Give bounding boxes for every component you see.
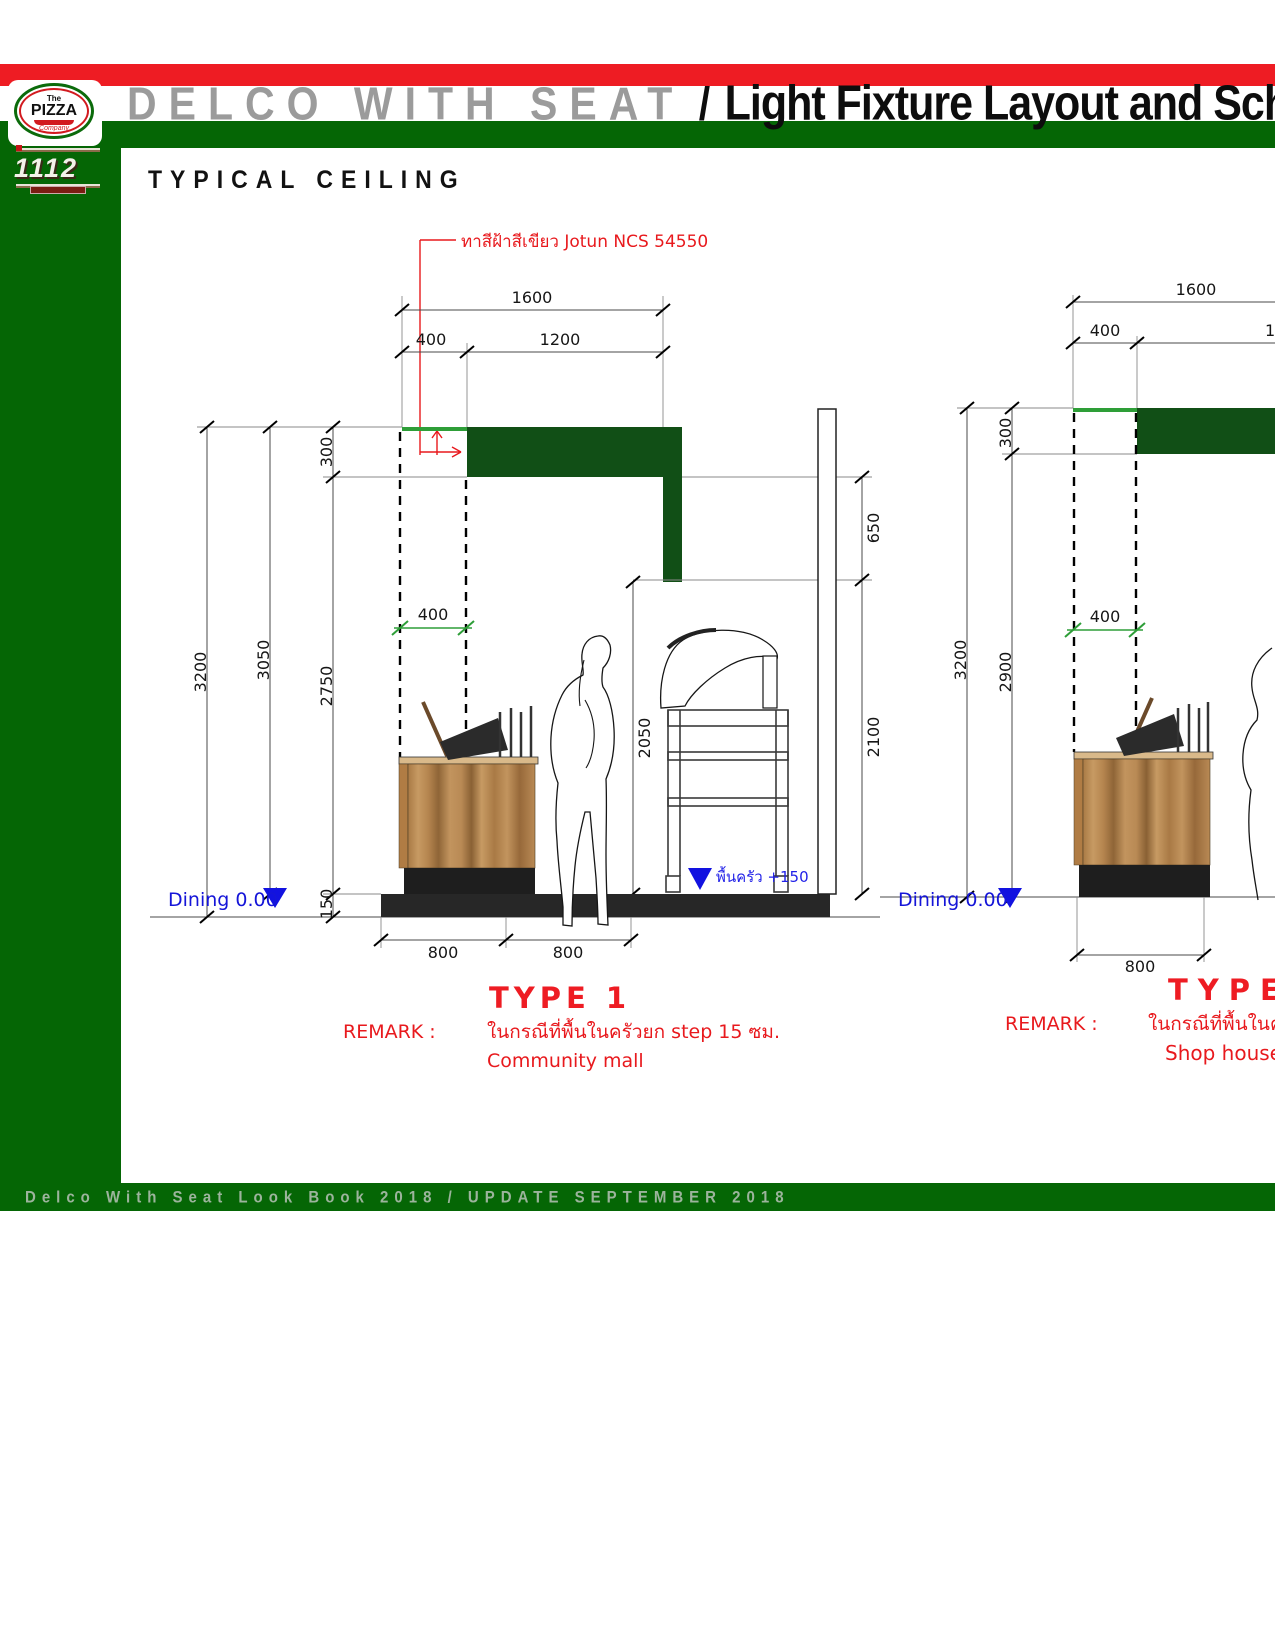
type2-counter-tools <box>1116 698 1208 756</box>
elevation-drawings: ทาสีฝ้าสีเขียว Jotun NCS 54550 1600 400 … <box>0 0 1275 1651</box>
type1-drawing: ทาสีฝ้าสีเขียว Jotun NCS 54550 1600 400 … <box>150 232 883 1072</box>
type1-dim-150: 150 <box>317 889 336 920</box>
type1-dim-800-b: 800 <box>553 943 584 962</box>
type2-drawing: 1600 400 1200 3200 300 2900 <box>880 280 1275 1065</box>
type1-oven <box>661 630 788 892</box>
type1-top-extensions <box>402 296 663 427</box>
type1-dim-1600: 1600 <box>512 288 553 307</box>
type2-person-silhouette-partial <box>1243 648 1272 900</box>
type2-dining-level-label: Dining 0.00 <box>898 889 1008 911</box>
type1-dim-300: 300 <box>317 437 336 468</box>
type2-remark-line2: Shop house <box>1165 1041 1275 1065</box>
type1-remark-line1: ในกรณีที่พื้นในครัวยก step 15 ซม. <box>487 1018 780 1043</box>
type1-dim-2100: 2100 <box>864 717 883 758</box>
lookbook-page: DELCO WITH SEAT / Light Fixture Layout a… <box>0 0 1275 1651</box>
type2-remark-line1: ในกรณีที่พื้นในครัว <box>1148 1010 1275 1035</box>
type1-dim-3050: 3050 <box>254 640 273 681</box>
type1-dim-650: 650 <box>864 513 883 544</box>
type1-dining-level-label: Dining 0.00 <box>168 889 278 911</box>
type2-dim-1600: 1600 <box>1176 280 1217 299</box>
type2-ceiling-bulkhead <box>1073 408 1275 454</box>
type1-dim-400-mid: 400 <box>418 605 449 624</box>
type2-label: TYPE 2 <box>1168 973 1275 1007</box>
type1-dim-2750: 2750 <box>317 666 336 707</box>
type2-dim-800: 800 <box>1125 957 1156 976</box>
type2-dim-400-mid: 400 <box>1090 607 1121 626</box>
type1-remark-line2: Community mall <box>487 1050 644 1072</box>
type2-counter <box>1074 752 1213 897</box>
type1-counter-tools <box>423 702 531 760</box>
type2-remark-label: REMARK : <box>1005 1013 1098 1035</box>
type1-dim-1200: 1200 <box>540 330 581 349</box>
type1-kitchen-level-marker <box>688 868 712 890</box>
type2-top-extensions <box>1073 295 1137 408</box>
type2-dim-300: 300 <box>996 418 1015 449</box>
type1-kitchen-level-label: พื้นครัว +150 <box>716 866 809 886</box>
type1-column <box>818 409 836 894</box>
type2-dim-3200: 3200 <box>951 640 970 681</box>
footer-text: Delco With Seat Look Book 2018 / UPDATE … <box>25 1188 790 1207</box>
type1-counter <box>399 757 538 894</box>
type2-dim-400-top: 400 <box>1090 321 1121 340</box>
type1-dim-400-top: 400 <box>416 330 447 349</box>
type2-dim-1200: 1200 <box>1265 321 1275 340</box>
type1-dim-3200: 3200 <box>191 652 210 693</box>
type1-remark-label: REMARK : <box>343 1021 436 1043</box>
type1-ceiling-bulkhead <box>402 427 682 582</box>
type2-bottom-dims <box>1070 897 1211 962</box>
type1-person-silhouette <box>551 636 614 926</box>
type2-dim-2900: 2900 <box>996 652 1015 693</box>
type1-dim-800-a: 800 <box>428 943 459 962</box>
type1-paint-annotation: ทาสีฝ้าสีเขียว Jotun NCS 54550 <box>461 232 708 252</box>
type1-label: TYPE 1 <box>489 981 631 1015</box>
type1-dim-2050: 2050 <box>635 718 654 759</box>
